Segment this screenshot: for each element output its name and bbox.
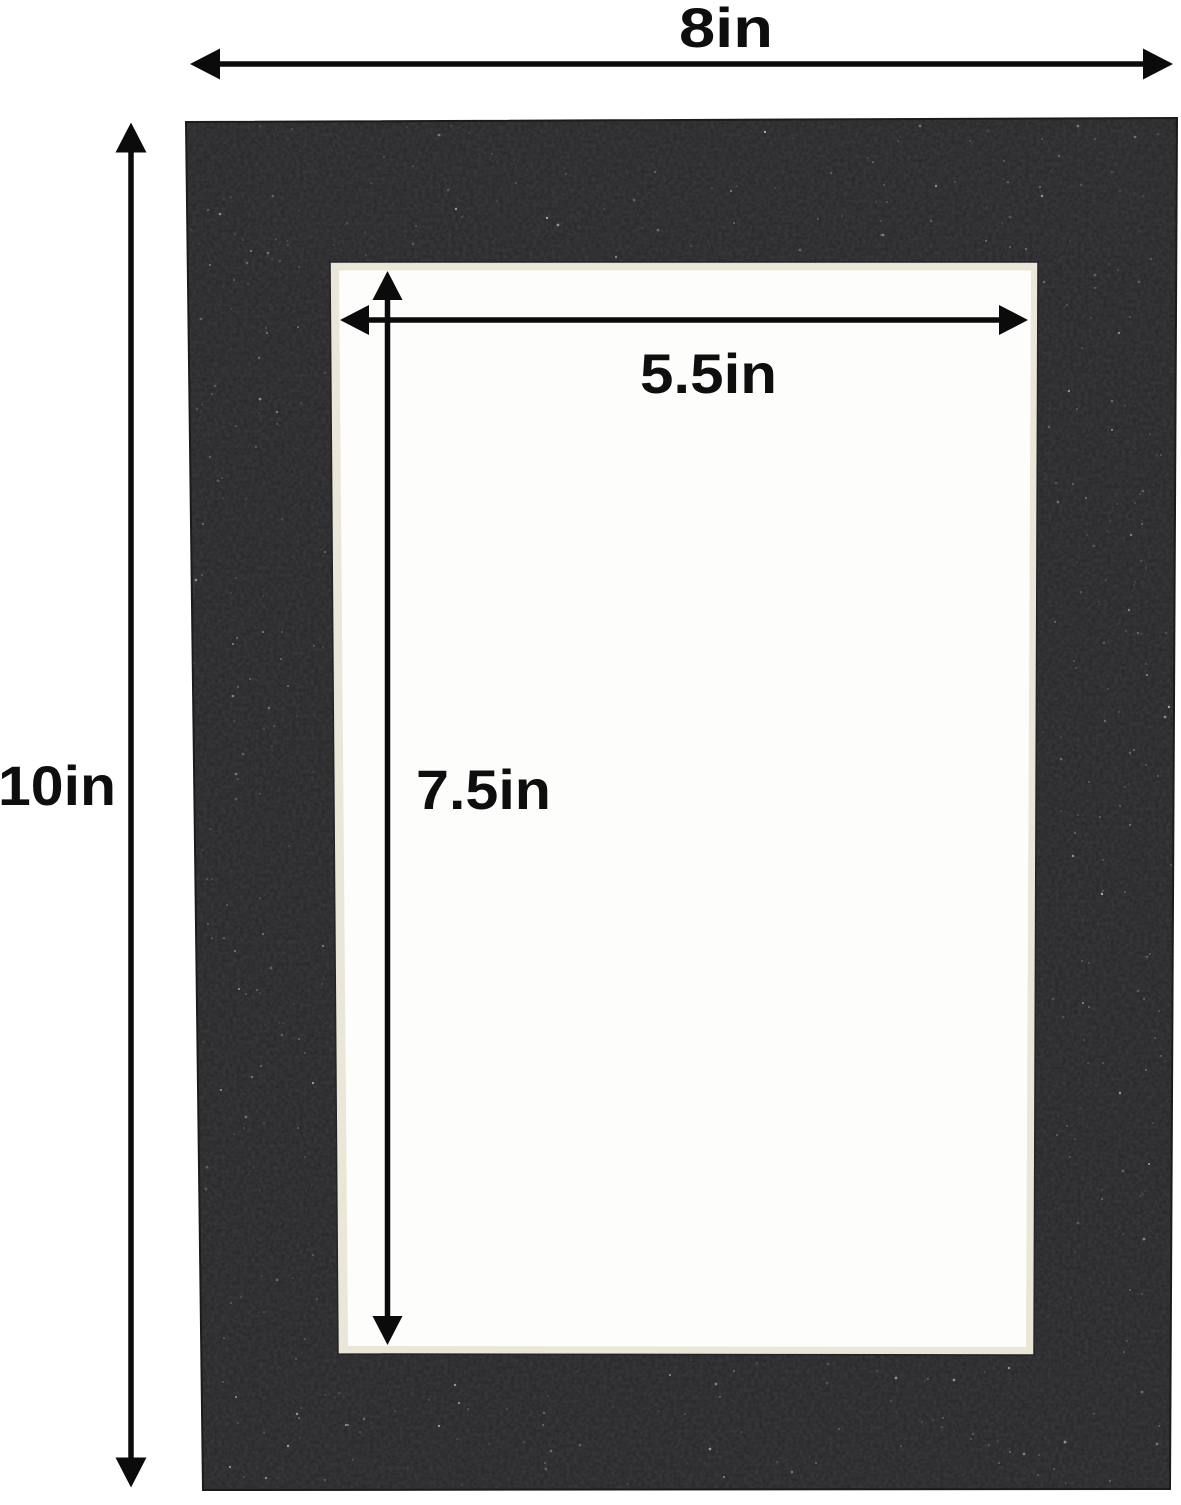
- svg-text:5.5in: 5.5in: [640, 342, 777, 405]
- svg-text:7.5in: 7.5in: [416, 758, 551, 821]
- svg-text:8in: 8in: [679, 0, 773, 59]
- svg-text:10in: 10in: [0, 754, 116, 817]
